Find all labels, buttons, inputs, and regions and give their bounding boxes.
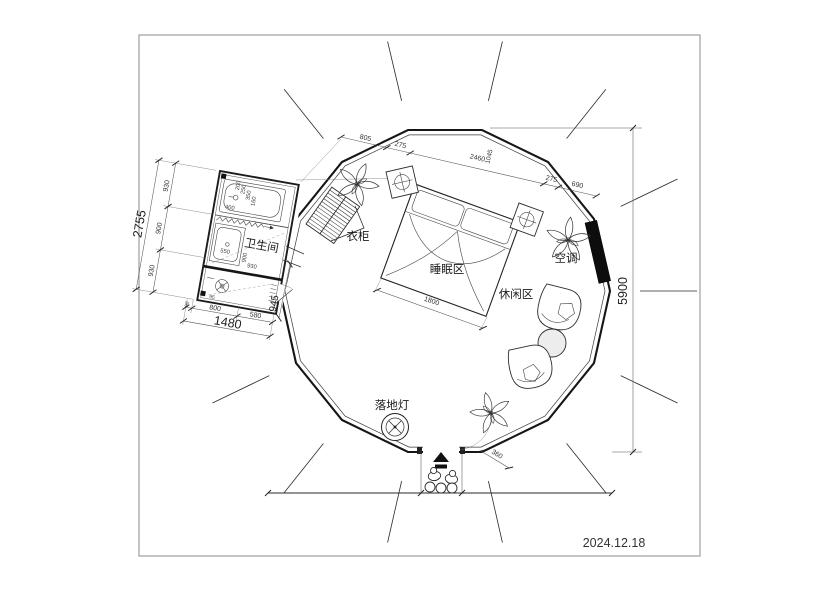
dim-805: 805 xyxy=(359,134,372,143)
entry-step-dimension: 360 xyxy=(477,447,513,472)
floorplan-sheet: 805 275 2460 1045 275 690 5900 xyxy=(0,0,837,592)
floorplan-drawing: 805 275 2460 1045 275 690 5900 xyxy=(0,0,837,592)
entry-arrow-icon xyxy=(433,452,449,462)
date-stamp: 2024.12.18 xyxy=(583,536,646,550)
leisure-area-label: 休闲区 xyxy=(499,287,534,301)
dim-900: 900 xyxy=(155,222,164,235)
dim-930-a: 930 xyxy=(163,180,172,193)
column-marker-bottom xyxy=(200,291,206,297)
dim-5900: 5900 xyxy=(616,277,630,305)
door-post-left xyxy=(417,447,422,454)
person-figure-2 xyxy=(444,469,459,485)
bathroom-annex: 卫生间 200 250 350 160 400 550 900 930 95 9… xyxy=(117,155,311,343)
air-conditioner-label: 空调 xyxy=(555,251,578,265)
door-post-right xyxy=(460,447,465,454)
dim-690: 690 xyxy=(571,181,584,190)
floor-lamp-label: 落地灯 xyxy=(375,399,410,412)
dim-90: 90 xyxy=(184,301,191,308)
sleeping-area-label: 睡眠区 xyxy=(430,263,465,276)
column-marker-top xyxy=(221,173,227,179)
dim-800: 800 xyxy=(209,304,222,313)
floor-lamp xyxy=(382,414,409,441)
nightstand-left xyxy=(386,166,418,198)
dim-930-b: 930 xyxy=(148,264,157,277)
dim-580: 580 xyxy=(249,311,262,320)
wardrobe-label: 衣柜 xyxy=(347,229,370,243)
dim-360: 360 xyxy=(490,449,504,461)
person-figure-1 xyxy=(427,467,441,482)
